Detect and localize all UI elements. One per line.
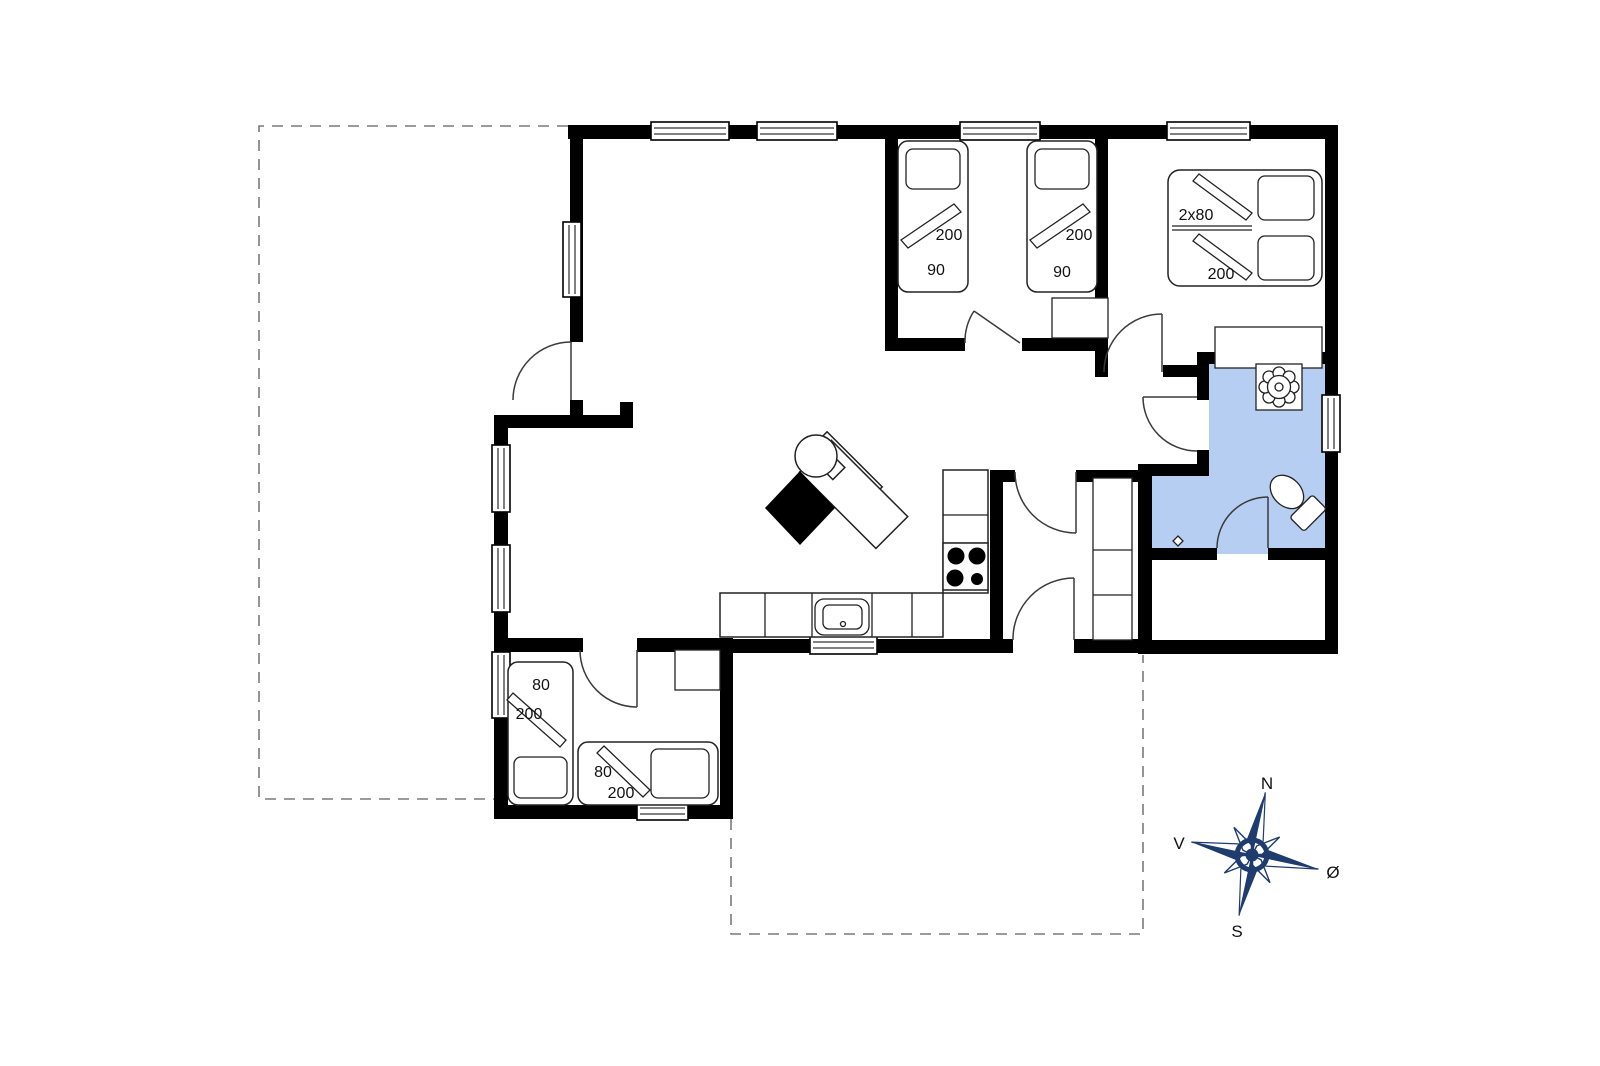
window-living-top-1 bbox=[651, 122, 729, 140]
window-living-left-2 bbox=[492, 545, 510, 612]
window-twin-bedroom-top bbox=[960, 122, 1040, 140]
door-double-bedroom bbox=[1104, 314, 1162, 372]
window-double-bedroom-top bbox=[1167, 122, 1250, 140]
compass-label-south: S bbox=[1231, 922, 1242, 941]
door-hall-vestibule bbox=[1015, 472, 1076, 533]
small-horizontal-width-label: 80 bbox=[594, 764, 612, 781]
shower-drain-icon bbox=[1256, 364, 1302, 410]
cooktop-burners-icon bbox=[943, 543, 988, 590]
wood-stove-icon bbox=[765, 432, 908, 549]
kitchen-sink bbox=[815, 599, 869, 635]
double-bed-size-label: 2x80 bbox=[1179, 207, 1214, 224]
terrace-outline-bottom bbox=[731, 655, 1143, 934]
compass-label-west: V bbox=[1173, 834, 1185, 853]
small-horizontal-length-label: 200 bbox=[608, 785, 635, 802]
twin-left-width-label: 90 bbox=[927, 262, 945, 279]
compass-label-east: Ø bbox=[1326, 863, 1339, 882]
bed-double bbox=[1168, 170, 1322, 286]
window-living-left-1 bbox=[492, 445, 510, 512]
door-bathroom-hall bbox=[1143, 397, 1197, 451]
twin-right-length-label: 200 bbox=[1066, 227, 1093, 244]
door-small-bedroom bbox=[580, 650, 637, 707]
window-kitchen-bottom bbox=[810, 636, 877, 654]
closet-double-bedroom bbox=[1215, 327, 1322, 368]
floor-plan-page: 200 90 200 90 2x80 200 80 200 80 200 bbox=[0, 0, 1600, 1066]
closet-twin-bedroom bbox=[1052, 298, 1108, 338]
table-small-bedroom bbox=[675, 650, 720, 690]
compass-label-north: N bbox=[1261, 774, 1273, 793]
double-bed-length-label: 200 bbox=[1208, 266, 1235, 283]
door-twin-bedroom bbox=[965, 311, 1020, 343]
compass-rose-icon: N S V Ø bbox=[1173, 774, 1339, 941]
small-vertical-length-label: 200 bbox=[516, 706, 543, 723]
twin-right-width-label: 90 bbox=[1053, 264, 1071, 281]
window-entry-left bbox=[563, 222, 581, 297]
floor-plan-svg: 200 90 200 90 2x80 200 80 200 80 200 bbox=[0, 0, 1600, 1066]
window-bathroom-right bbox=[1322, 395, 1340, 452]
door-entrance bbox=[513, 342, 571, 400]
twin-left-length-label: 200 bbox=[936, 227, 963, 244]
hall-closet bbox=[1093, 478, 1132, 640]
door-terrace-back bbox=[1013, 578, 1074, 640]
small-vertical-width-label: 80 bbox=[532, 677, 550, 694]
window-living-top-2 bbox=[757, 122, 837, 140]
